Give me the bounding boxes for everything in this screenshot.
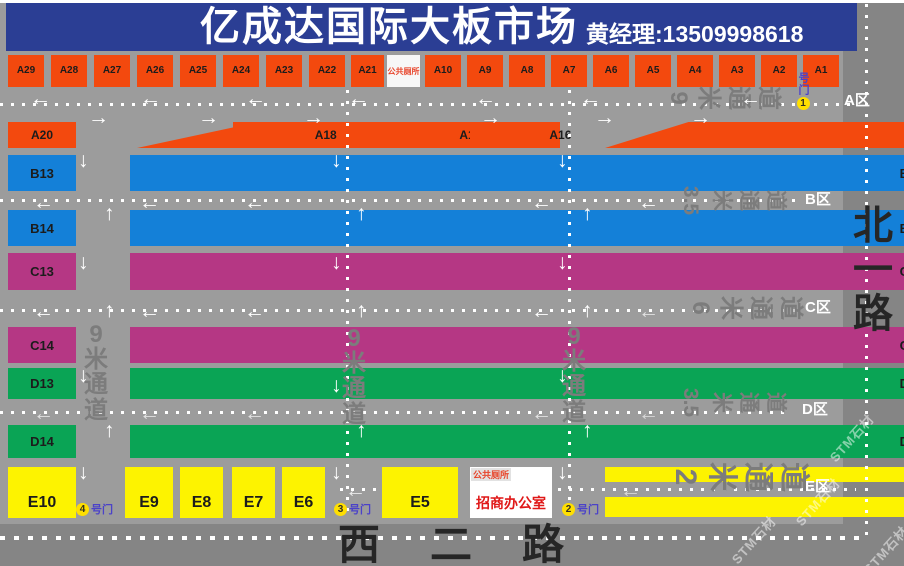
- stall-a7: A7: [551, 55, 587, 87]
- aisle-label-char: 米: [718, 296, 742, 320]
- stall-a6: A6: [593, 55, 629, 87]
- arrow-left-icon: ←: [244, 403, 265, 424]
- road-dash-line: [568, 90, 571, 517]
- arrow-left-icon: ←: [638, 192, 659, 213]
- arrow-down-icon: ↓: [78, 252, 89, 273]
- arrow-left-icon: ←: [638, 403, 659, 424]
- arrow-up-icon: ↑: [582, 203, 593, 224]
- aisle-label-char: 9: [567, 324, 580, 349]
- arrow-up-icon: ↑: [104, 420, 115, 441]
- aisle-label-char: 通: [748, 296, 772, 320]
- market-title: 亿成达国际大板市场: [200, 7, 578, 47]
- stall-a20: A20: [8, 122, 76, 148]
- east-road-name: 北一路: [849, 204, 889, 336]
- aisle-label-char: 道: [778, 296, 802, 320]
- arrow-left-icon: ←: [348, 88, 369, 109]
- arrow-up-icon: ↑: [104, 300, 115, 321]
- arrow-left-icon: ←: [139, 403, 160, 424]
- header-banner: 亿成达国际大板市场 黄经理:13509998618: [6, 3, 857, 51]
- arrow-right-icon: →: [303, 107, 324, 128]
- aisle-label-char: 道: [765, 190, 786, 211]
- arrow-left-icon: ←: [244, 301, 265, 322]
- aisle-width-label: 9米通道: [342, 326, 366, 427]
- aisle-width-label: 3.5米通道: [676, 392, 786, 413]
- aisle-width-label: 9米通道: [666, 86, 780, 110]
- stall-d2: D2: [709, 425, 904, 458]
- aisle-label-char: 通: [738, 392, 759, 413]
- aisle-label-char: 米: [342, 351, 366, 376]
- aisle-label-char: 2: [670, 462, 700, 492]
- arrow-up-icon: ↑: [356, 300, 367, 321]
- stall-a5: A5: [635, 55, 671, 87]
- arrow-down-icon: ↓: [557, 150, 568, 171]
- stall-a28: A28: [51, 55, 87, 87]
- gate-number-badge: 4: [76, 503, 89, 516]
- stall-a9: A9: [467, 55, 503, 87]
- stall-e5: E5: [382, 467, 458, 518]
- zone-label-3: C区: [805, 300, 831, 315]
- gate-2: 2号门: [562, 501, 599, 517]
- stall-e7: E7: [232, 467, 275, 518]
- road-dash-line: [0, 309, 796, 312]
- aisle-label-char: 米: [711, 190, 732, 211]
- stall-d14: D14: [8, 425, 76, 458]
- gate-number-badge: 2: [562, 503, 575, 516]
- gate-label: 号门: [349, 501, 371, 517]
- stall-e6: E6: [282, 467, 325, 518]
- stall-e9: E9: [125, 467, 173, 518]
- aisle-label-char: 9: [347, 326, 360, 351]
- arrow-down-icon: ↓: [557, 365, 568, 386]
- arrow-down-icon: ↓: [331, 375, 342, 396]
- gate-label: 号门: [91, 501, 113, 517]
- aisle-label-char: 6: [688, 296, 712, 320]
- stall-b14: B14: [8, 210, 76, 246]
- arrow-left-icon: ←: [740, 88, 761, 109]
- stall-e10: E10: [8, 467, 76, 518]
- stall-a2: A2: [761, 55, 797, 87]
- stall-a15-a11: A15-A11: [605, 122, 904, 148]
- arrow-down-icon: ↓: [331, 462, 342, 483]
- stall-b1: B1: [709, 155, 904, 191]
- stall-d13: D13: [8, 368, 76, 399]
- arrow-up-icon: ↑: [104, 203, 115, 224]
- stall-a23: A23: [266, 55, 302, 87]
- arrow-down-icon: ↓: [78, 365, 89, 386]
- arrow-right-icon: →: [594, 107, 615, 128]
- public-toilet-label: 公共厕所: [388, 66, 420, 77]
- arrow-down-icon: ↓: [78, 150, 89, 171]
- aisle-label-char: 米: [706, 462, 736, 492]
- top-border: [0, 0, 904, 3]
- arrow-left-icon: ←: [139, 192, 160, 213]
- stall-a26: A26: [137, 55, 173, 87]
- arrow-left-icon: ←: [33, 192, 54, 213]
- arrow-down-icon: ↓: [557, 252, 568, 273]
- stall-a3: A3: [719, 55, 755, 87]
- arrow-left-icon: ←: [33, 403, 54, 424]
- gate-number-badge: 3: [334, 503, 347, 516]
- aisle-label-char: 9: [666, 86, 690, 110]
- stall-a21: A21: [351, 55, 384, 87]
- arrow-right-icon: →: [88, 107, 109, 128]
- gate-1: 号门1: [795, 72, 811, 110]
- public-toilet-label: 公共厕所: [471, 468, 511, 481]
- stall-a25: A25: [180, 55, 216, 87]
- aisle-label-char: 3.5: [680, 388, 701, 417]
- arrow-down-icon: ↓: [331, 252, 342, 273]
- aisle-label-char: 米: [711, 392, 732, 413]
- arrow-left-icon: ←: [244, 192, 265, 213]
- aisle-label-char: 道: [765, 392, 786, 413]
- arrow-left-icon: ←: [139, 301, 160, 322]
- stall-a17: A17: [380, 122, 470, 148]
- aisle-label-char: 通: [342, 376, 366, 401]
- stall-a29: A29: [8, 55, 44, 87]
- arrow-up-icon: ↑: [356, 203, 367, 224]
- arrow-right-icon: →: [690, 107, 711, 128]
- south-road-name: 西二路: [338, 524, 614, 566]
- arrow-left-icon: ←: [30, 88, 51, 109]
- office-label: 招商办公室: [470, 493, 552, 513]
- arrow-up-icon: ↑: [582, 420, 593, 441]
- gate-number-badge: 1: [797, 97, 810, 110]
- stall-c13: C13: [8, 253, 76, 290]
- arrow-up-icon: ↑: [582, 300, 593, 321]
- road-dash-line: [346, 90, 349, 517]
- arrow-right-icon: →: [480, 107, 501, 128]
- arrow-left-icon: ←: [638, 301, 659, 322]
- road-dash-line: [0, 411, 792, 414]
- aisle-width-label: 3.5米通道: [676, 190, 786, 211]
- stall-a22: A22: [309, 55, 345, 87]
- arrow-down-icon: ↓: [331, 150, 342, 171]
- arrow-left-icon: ←: [531, 403, 552, 424]
- zone-label-4: D区: [802, 402, 828, 417]
- aisle-label-char: 通: [738, 190, 759, 211]
- arrow-down-icon: ↓: [557, 462, 568, 483]
- map-layer: A29A28A27A26A25A24A23A22A21A10A9A8A7A6A5…: [0, 0, 904, 566]
- office-block: 公共厕所 招商办公室: [470, 467, 552, 518]
- stall-a4: A4: [677, 55, 713, 87]
- public-toilet-block-north: 公共厕所: [387, 55, 420, 87]
- stall-c14: C14: [8, 327, 76, 363]
- gate-3: 3号门: [334, 501, 371, 517]
- arrow-left-icon: ←: [140, 88, 161, 109]
- stall-a24: A24: [223, 55, 259, 87]
- zone-label-1: A区: [844, 93, 870, 108]
- arrow-left-icon: ←: [620, 480, 641, 501]
- arrow-right-icon: →: [198, 107, 219, 128]
- stall-a27: A27: [94, 55, 130, 87]
- arrow-left-icon: ←: [33, 301, 54, 322]
- aisle-label-char: 3.5: [680, 186, 701, 215]
- stall-a10: A10: [425, 55, 461, 87]
- aisle-width-label: 6米通道: [688, 296, 802, 320]
- arrow-left-icon: ←: [245, 88, 266, 109]
- market-map: 北一路 西二路 亿成达国际大板市场 黄经理:13509998618 公共厕所 公…: [0, 0, 904, 566]
- gate-label: 号门: [577, 501, 599, 517]
- stall-b13: B13: [8, 155, 76, 191]
- aisle-width-label: 2米通道: [670, 462, 808, 492]
- arrow-left-icon: ←: [531, 301, 552, 322]
- stall-e8: E8: [180, 467, 223, 518]
- stall-a8: A8: [509, 55, 545, 87]
- arrow-up-icon: ↑: [356, 420, 367, 441]
- manager-contact: 黄经理:13509998618: [586, 23, 803, 46]
- gate-label: 号门: [795, 72, 811, 96]
- arrow-down-icon: ↓: [78, 462, 89, 483]
- arrow-left-icon: ←: [531, 192, 552, 213]
- zone-label-2: B区: [805, 192, 831, 207]
- aisle-label-char: 道: [778, 462, 808, 492]
- gate-4: 4号门: [76, 501, 113, 517]
- aisle-label-char: 通: [742, 462, 772, 492]
- aisle-label-char: 9: [89, 322, 102, 347]
- arrow-left-icon: ←: [345, 480, 366, 501]
